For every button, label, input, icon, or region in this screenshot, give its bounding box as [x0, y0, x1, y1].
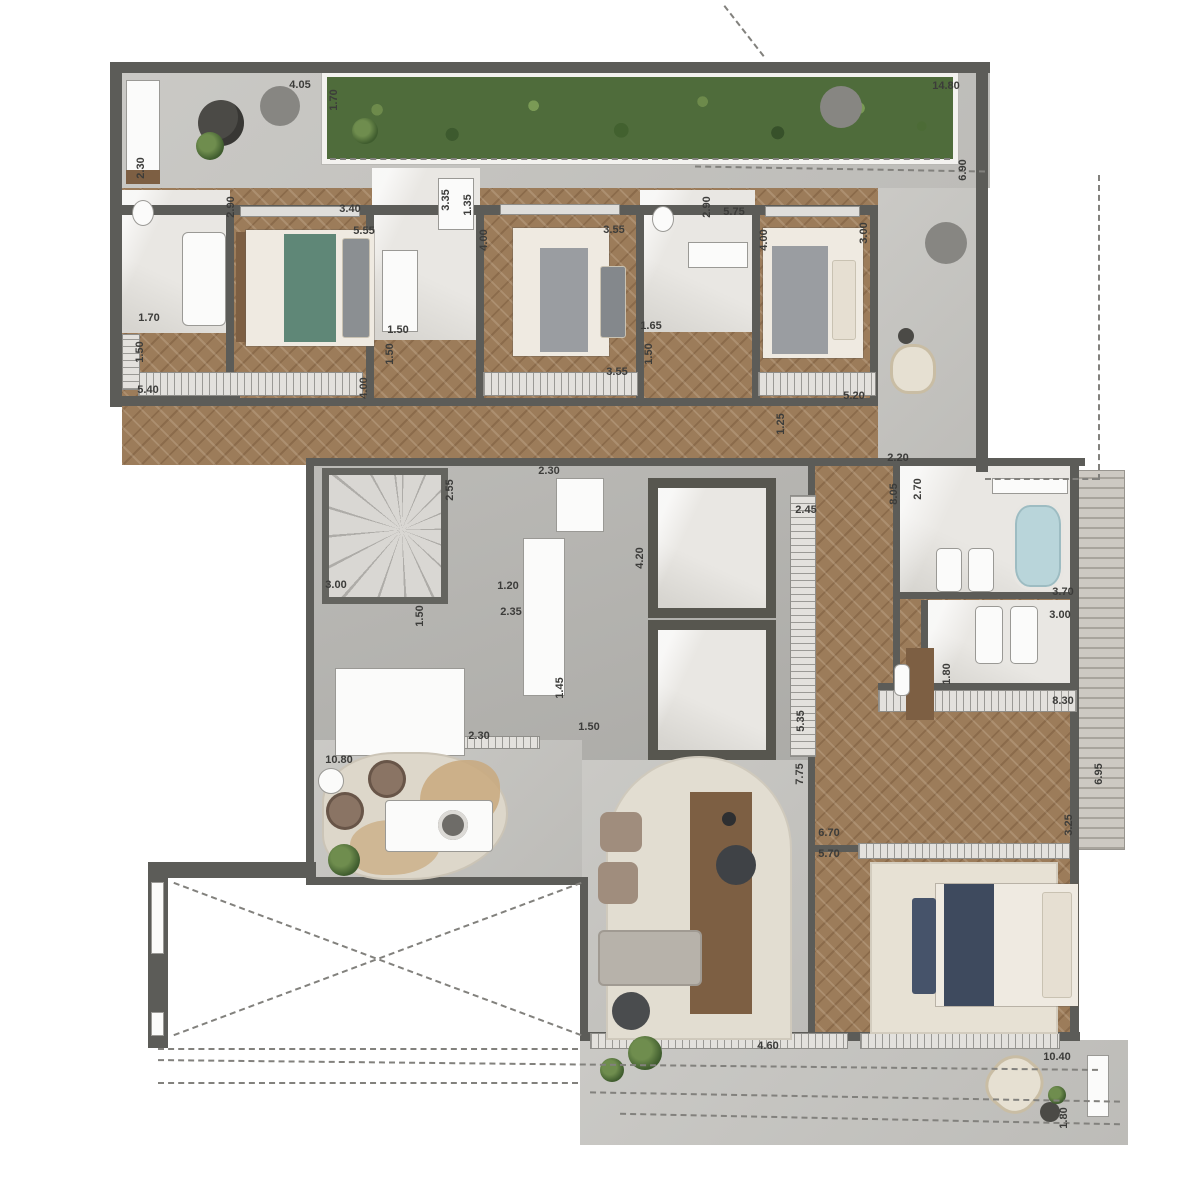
window-slot	[151, 1012, 164, 1036]
dashed-line	[158, 1048, 578, 1050]
dimension-label: 5.70	[818, 848, 839, 860]
dimension-label: 4.00	[478, 229, 490, 250]
dimension-label: 3.00	[325, 579, 346, 591]
dimension-label: 1.50	[384, 343, 396, 364]
wall-segment	[306, 458, 880, 466]
elevator-shaft-2	[648, 620, 776, 760]
dashed-line	[158, 1082, 578, 1084]
dimension-label: 2.30	[538, 465, 559, 477]
kettle-grill	[318, 768, 344, 794]
dimension-label: 3.00	[858, 222, 870, 243]
garden-edge-dashed	[330, 158, 950, 160]
dimension-label: 6.95	[1093, 763, 1105, 784]
dimension-label: 4.05	[289, 79, 310, 91]
dimension-label: 1.65	[640, 320, 661, 332]
dimension-label: 1.70	[138, 312, 159, 324]
wall-segment	[976, 62, 988, 472]
dimension-label: 2.90	[225, 196, 237, 217]
wall-segment	[306, 877, 588, 885]
elevator-shaft-1	[648, 478, 776, 618]
round-table	[260, 86, 300, 126]
wall-segment	[808, 458, 1085, 466]
master-sink-2	[968, 548, 994, 592]
sill	[858, 843, 1070, 859]
pantry-cabinet	[556, 478, 604, 532]
floor-plan: 4.051.7014.806.902.302.903.405.553.351.3…	[0, 0, 1200, 1200]
hall-console	[906, 648, 934, 720]
side-deck	[1077, 470, 1125, 850]
dimension-label: 2.70	[912, 478, 924, 499]
garden-stone	[820, 86, 862, 128]
dimension-label: 2.30	[468, 730, 489, 742]
dimension-label: 4.60	[757, 1040, 778, 1052]
side-table-small	[898, 328, 914, 344]
master-shelf	[992, 478, 1068, 494]
dimension-label: 6.70	[818, 827, 839, 839]
dimension-label: 4.20	[634, 547, 646, 568]
bathtub-1	[182, 232, 226, 326]
armchair-1	[600, 812, 642, 852]
plant	[328, 844, 360, 876]
sill	[860, 1033, 1060, 1049]
dimension-label: 2.90	[701, 196, 713, 217]
window-slot	[1087, 1055, 1109, 1117]
bed-3-blanket	[772, 246, 828, 354]
elevator-cab	[658, 630, 766, 750]
hall-chair	[894, 664, 910, 696]
wall-segment	[110, 62, 122, 407]
dashed-line	[724, 5, 765, 57]
dimension-label: 14.80	[932, 80, 960, 92]
dimension-label: 1.80	[1058, 1107, 1070, 1128]
dimension-label: 6.90	[957, 159, 969, 180]
dimension-label: 1.50	[134, 341, 146, 362]
toilet-1	[132, 200, 154, 226]
dimension-label: 3.35	[440, 189, 452, 210]
dimension-label: 3.00	[1049, 609, 1070, 621]
toilet-3	[652, 206, 674, 232]
stool-2	[326, 792, 364, 830]
dimension-label: 2.20	[887, 452, 908, 464]
wall-segment	[110, 62, 990, 73]
pot-bottom	[1040, 1102, 1060, 1122]
vanity-2	[382, 250, 418, 332]
decor-bowl	[722, 812, 736, 826]
bed-3-pillows	[832, 260, 856, 340]
dimension-label: 2.30	[135, 157, 147, 178]
wall-segment	[306, 458, 314, 760]
dimension-label: 1.25	[775, 413, 787, 434]
dimension-label: 2.45	[795, 504, 816, 516]
master-bathtub	[1012, 502, 1064, 590]
side-table-dark	[716, 845, 756, 885]
dimension-label: 8.05	[888, 483, 900, 504]
dimension-label: 7.75	[794, 763, 806, 784]
palm-plant	[600, 1058, 624, 1082]
hall-cabinet	[523, 538, 565, 696]
planter-pot	[925, 222, 967, 264]
wall-segment	[893, 592, 1077, 599]
dimension-label: 4.00	[758, 229, 770, 250]
laundry-counter	[335, 668, 465, 756]
bed-2-pillows	[600, 266, 626, 338]
dimension-label: 4.00	[358, 377, 370, 398]
dimension-label: 5.55	[353, 225, 374, 237]
dimension-label: 5.35	[795, 710, 807, 731]
dimension-label: 5.40	[137, 384, 158, 396]
dimension-label: 1.35	[462, 194, 474, 215]
master-pillows	[1042, 892, 1072, 998]
dimension-label: 2.55	[444, 479, 456, 500]
closet-sink-1	[975, 606, 1003, 664]
plant	[352, 118, 378, 144]
wicker-chair-right	[890, 344, 936, 394]
wall-segment	[580, 877, 588, 1040]
garden-planter	[322, 72, 958, 164]
dimension-label: 1.50	[578, 721, 599, 733]
dashed-line	[1098, 175, 1100, 480]
sill	[138, 372, 363, 396]
dimension-label: 2.35	[500, 606, 521, 618]
armchair-2	[598, 862, 638, 904]
dimension-label: 3.40	[339, 203, 360, 215]
dimension-label: 8.30	[1052, 695, 1073, 707]
dimension-label: 1.50	[387, 324, 408, 336]
master-sink-1	[936, 548, 962, 592]
bed-2-blanket	[540, 248, 588, 352]
dimension-label: 1.70	[328, 89, 340, 110]
dimension-label: 3.25	[1063, 814, 1075, 835]
wall-segment	[148, 862, 316, 878]
dimension-label: 1.20	[497, 580, 518, 592]
elevator-cab	[658, 488, 766, 608]
sill	[765, 206, 860, 217]
dimension-label: 10.80	[325, 754, 353, 766]
stool-1	[368, 760, 406, 798]
dimension-label: 3.55	[606, 366, 627, 378]
dimension-label: 1.45	[554, 677, 566, 698]
master-bed-runner	[944, 884, 994, 1006]
master-bench	[912, 898, 936, 994]
sill	[500, 204, 620, 215]
dimension-label: 3.55	[603, 224, 624, 236]
bed-1-blanket	[284, 234, 336, 342]
dimension-label: 1.50	[643, 343, 655, 364]
dimension-label: 3.70	[1052, 586, 1073, 598]
plant	[196, 132, 224, 160]
sofa	[598, 930, 702, 986]
closet-sink-2	[1010, 606, 1038, 664]
wall-segment	[122, 398, 878, 406]
dashed-line	[985, 478, 1098, 480]
dimension-label: 1.50	[414, 605, 426, 626]
dimension-label: 10.40	[1043, 1051, 1071, 1063]
dimension-label: 5.20	[843, 390, 864, 402]
pouf-dark	[612, 992, 650, 1030]
dimension-label: 5.75	[723, 206, 744, 218]
cooktop	[438, 810, 468, 840]
bed-1-pillows	[342, 238, 370, 338]
dimension-label: 1.80	[941, 663, 953, 684]
vanity-3	[688, 242, 748, 268]
window-slot	[151, 882, 164, 954]
